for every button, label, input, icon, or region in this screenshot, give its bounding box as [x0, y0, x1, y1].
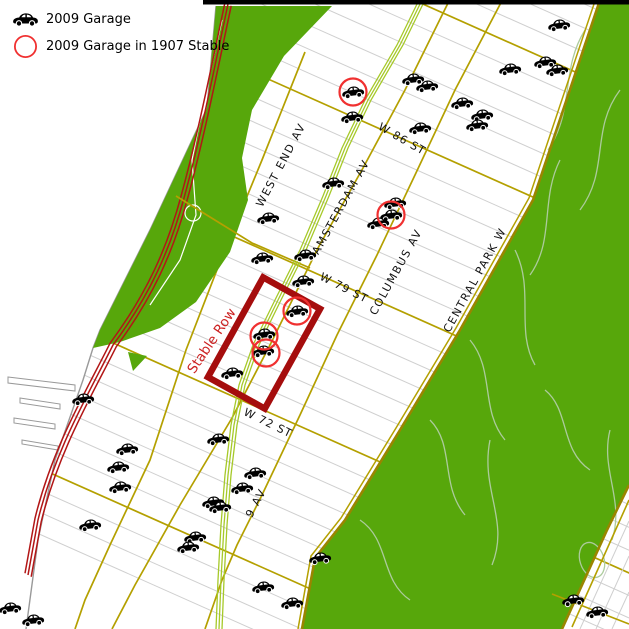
garage-car-marker [176, 540, 199, 554]
legend-item-garage: 2009 Garage [10, 6, 229, 33]
garage-car-marker [106, 460, 129, 474]
stable-row-box [208, 277, 320, 408]
map-neatline [203, 0, 629, 5]
garage-car-marker [251, 580, 274, 594]
garage-car-marker [108, 480, 131, 494]
legend-label-stable: 2009 Garage in 1907 Stable [46, 39, 229, 54]
garage-car-marker [408, 121, 431, 135]
garage-car-marker [293, 248, 316, 262]
garage-car-marker [291, 274, 314, 288]
legend: 2009 Garage 2009 Garage in 1907 Stable [10, 6, 229, 60]
garage-car-marker [115, 442, 138, 456]
legend-item-stable: 2009 Garage in 1907 Stable [10, 33, 229, 60]
red-circle-icon [10, 34, 40, 59]
garage-car-marker [280, 596, 303, 610]
map-canvas [0, 0, 629, 629]
garage-car-marker [206, 432, 229, 446]
garage-car-marker [401, 72, 424, 86]
garage-car-marker [450, 96, 473, 110]
map-figure: W 86 STW 79 STW 72 ST9 AVWEST END AVAMST… [0, 0, 629, 629]
garage-car-marker [230, 481, 253, 495]
garage-car-marker [498, 62, 521, 76]
legend-label-garage: 2009 Garage [46, 12, 131, 27]
garage-car-marker [78, 518, 101, 532]
garage-car-marker [470, 108, 493, 122]
car-icon [10, 12, 40, 27]
garage-car-marker [243, 466, 266, 480]
garage-car-marker [220, 366, 243, 380]
garage-car-marker [341, 85, 364, 99]
